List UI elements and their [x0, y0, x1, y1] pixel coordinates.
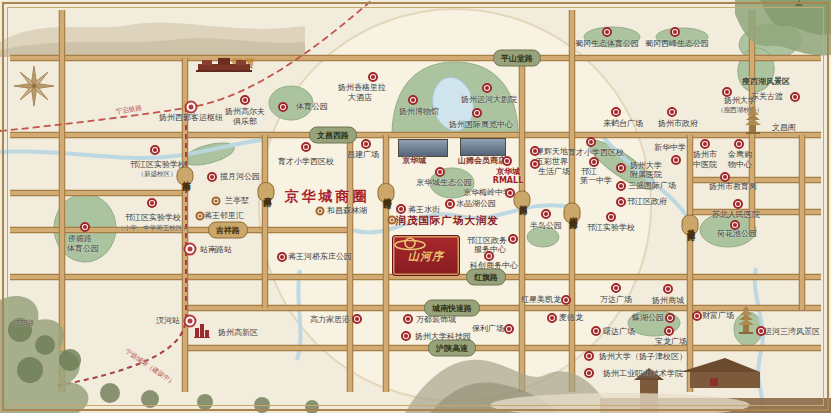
golf-club-icon — [240, 95, 250, 105]
tcm-hospital-label-1: 扬州市 — [693, 151, 717, 159]
road-badge-guozhan-rd: 国展路 — [514, 191, 531, 210]
jiangwang-linlihui-icon — [196, 212, 205, 221]
hehuachi-park-icon — [730, 220, 740, 230]
subei-peoples-hospital-label: 苏北人民医院 — [712, 211, 760, 219]
sanwan-scenic-area-label: 运河三湾风景区 — [764, 328, 820, 336]
runmao-rtmart-icon — [388, 216, 397, 225]
xinghui-tiandi-icon2-icon — [530, 159, 540, 169]
deco-temple-hall — [690, 372, 760, 388]
deco-temple-accent — [710, 378, 718, 386]
jinghua-rmall-icon — [502, 156, 512, 166]
yucai-primary-west-1-icon — [301, 142, 311, 152]
gaoli-home-port-label: 高力家居港 — [310, 316, 350, 324]
yangzhou-museum-label: 扬州博物馆 — [399, 108, 439, 116]
gov-service-center-icon — [508, 234, 518, 244]
golf-club-label-2: 俱乐部 — [233, 118, 257, 126]
shouxihu-scenic-label: 瘦西湖风景区 — [742, 78, 790, 86]
golden-eagle-center-label-1: 金鹰购 — [728, 151, 752, 159]
hanjiang-exp-school-jiangwang-label-2: （小学、中学蒋王校区） — [117, 225, 189, 232]
hechang-forest-lake-label: 和昌森林湖 — [327, 207, 367, 215]
hanjiang-exp-school-xinsheng-label-2: （新盛校区） — [138, 171, 177, 178]
bandao-park-label: 半岛公园 — [530, 222, 562, 230]
deco-tree-5 — [141, 390, 159, 408]
wandu-deco-city-icon — [403, 314, 413, 324]
deco-tree-6 — [197, 394, 213, 410]
baolong-plaza-label: 宝龙广场 — [655, 338, 687, 346]
thumb-sams-club-photo — [460, 138, 506, 156]
yzu-yangzijin-campus-icon — [584, 351, 594, 361]
macalline-label: 红星美凯龙 — [521, 296, 561, 304]
chahe-station-icon — [184, 315, 197, 328]
tcm-hospital-label-2: 中医院 — [693, 161, 717, 169]
jiangwang-bridge-park-label: 蒋王河桥东庄公园 — [288, 253, 352, 261]
wanda-plaza-icon — [611, 283, 621, 293]
shangri-la-hotel-label-1: 扬州香格里拉 — [338, 84, 386, 92]
project-logo-box: 山河序 — [392, 235, 460, 276]
hanjiang-no1-middle-icon — [589, 157, 599, 167]
changjian-plaza-label: 昌建广场 — [347, 151, 379, 159]
road-badge-chengnan-expwy: 城南快速路 — [424, 300, 480, 317]
jiangwang-bridge-park-icon — [277, 252, 287, 262]
xinghui-tiandi-label-2: 五彩世界 — [536, 158, 568, 166]
zhannan-rd-station-label: 站南路站 — [200, 246, 232, 254]
project-emblem-icon — [393, 236, 427, 252]
sister-project-logo: 山河颂 — [196, 56, 276, 71]
bandao-park-icon — [541, 209, 551, 219]
laihetai-plaza-icon — [611, 107, 621, 117]
subei-peoples-hospital-icon — [733, 199, 743, 209]
yangzhou-mall-label: 扬州商城 — [652, 297, 684, 305]
xinghui-tiandi-icon — [530, 146, 540, 156]
shuda-plaza-label: 曙达广场 — [603, 328, 635, 336]
road-badge-jixiang-rd: 吉祥路 — [208, 222, 248, 239]
road-badge-yangzijiang-middle-rd: 扬子江中路 — [682, 215, 699, 236]
metro-market-icon — [547, 313, 557, 323]
park-blob-9 — [527, 227, 559, 247]
deco-tree-4 — [100, 383, 120, 403]
kechuang-business-center-icon — [484, 251, 494, 261]
hanjiang-exp-school-jiangwang-label-1: 邗江区实验学校 — [125, 214, 181, 222]
canal-grand-theatre-label: 扬州运河大剧院 — [461, 96, 517, 104]
shugang-eco-sports-park-icon — [602, 27, 612, 37]
hanjiang-exp-school-xinsheng-label-1: 邗江区实验学校 — [130, 161, 186, 169]
zhannan-rd-station-icon — [184, 243, 197, 256]
jinghua-mall-label: 京华城 — [402, 157, 426, 165]
wandu-deco-city-label: 万都装饰城 — [416, 316, 456, 324]
yzu-affiliated-hospital-label-2: 附属医院 — [630, 171, 662, 179]
lanting-villa-label: 兰亭墅 — [225, 197, 249, 205]
road-badge-bowuguan-rd: 博物馆路 — [378, 183, 395, 203]
crystal-lake-park-icon — [445, 199, 455, 209]
diehu-park-label: 蝶湖公园 — [632, 314, 664, 322]
road-badge-pingshantang-rd: 平山堂路 — [493, 50, 541, 67]
road-badge-hushaan-expwy: 沪陕高速 — [428, 340, 476, 357]
shugang-west-eco-park-label: 蜀冈西峰生态公园 — [645, 40, 709, 48]
road-badge-wenchang-west-rd: 文昌西路 — [309, 127, 357, 144]
city-government-label: 扬州市政府 — [658, 120, 698, 128]
gaoxin-district-label: 扬州高新区 — [218, 329, 258, 337]
sanwan-scenic-area-icon — [756, 326, 766, 336]
sams-club-label: 山姆会员商店 — [458, 157, 506, 165]
shugang-west-eco-park-icon — [670, 27, 680, 37]
jinghua-eco-park-label: 京华城生态公园 — [416, 179, 472, 187]
sansheng-intl-plaza-icon — [616, 181, 626, 191]
golf-club-label-1: 扬州高尔夫 — [225, 108, 265, 116]
golden-eagle-center-label-2: 物中心 — [728, 161, 752, 169]
metro-market-label: 麦德龙 — [559, 314, 583, 322]
canal-grand-theatre-icon — [482, 83, 492, 93]
deco-tree-2 — [59, 349, 81, 371]
changjian-plaza-icon — [361, 139, 371, 149]
deco-tree-7 — [254, 397, 270, 413]
yucai-primary-west-2-icon — [586, 137, 596, 147]
xinghui-tiandi-label-3: 生活广场 — [538, 168, 570, 176]
meiling-middle-school-label: 京华梅岭中学 — [463, 189, 511, 197]
jinghua-eco-park-icon — [435, 167, 445, 177]
jiangwang-water-street-icon — [396, 204, 406, 214]
dongguan-ferry-label: 东关古渡 — [751, 93, 783, 101]
gaoli-home-port-icon — [352, 314, 362, 324]
yzu-affiliated-hospital-icon — [616, 163, 626, 173]
jinghua-rmall-label-2: RMALL — [493, 177, 524, 185]
hanjiang-no1-middle-label-1: 邗江 — [581, 168, 597, 176]
deco-tree-3 — [17, 357, 43, 383]
shenyang-rd-label: 沈阳路 — [14, 320, 35, 327]
shangri-la-hotel-label-2: 大酒店 — [348, 94, 372, 102]
thumb-jinghua-mall-photo — [398, 139, 448, 157]
qiaomei-rd-sports-park-label-1: 侨媚路 — [68, 235, 92, 243]
deco-tree-1 — [35, 335, 55, 355]
laihetai-plaza-label: 来鹤台广场 — [603, 120, 643, 128]
macalline-icon — [561, 295, 571, 305]
xinhua-middle-school-label: 新华中学 — [654, 144, 686, 152]
road-badge-hongqi-rd: 红旗路 — [466, 269, 506, 286]
lanyuehe-park-label: 揽月河公园 — [220, 173, 260, 181]
hanjiang-exp-school-xinsheng-icon — [150, 145, 160, 155]
chahe-station-label: 汊河站 — [156, 317, 180, 325]
hanjiang-district-gov-label: 邗江区政府 — [627, 198, 667, 206]
city-government-icon — [667, 107, 677, 117]
poly-plaza-icon — [504, 324, 514, 334]
sansheng-intl-plaza-label: 三盛国际广场 — [628, 182, 676, 190]
crystal-lake-park-label: 水晶湖公园 — [456, 200, 496, 208]
runmao-rtmart-label: 润茂国际广场大润发 — [395, 215, 499, 226]
yzu-science-park-icon — [401, 331, 411, 341]
hanjiang-exp-school-icon — [606, 212, 616, 222]
road-badge-zhenzhou-middle-rd: 真州中路 — [258, 182, 275, 202]
jinghua-rmall-label-1: 京华城 — [496, 168, 520, 176]
diehu-park-icon — [665, 313, 675, 323]
lanting-villa-icon — [212, 197, 221, 206]
map-canvas: 平山堂路文昌西路吉祥路红旗路城南快速路沪陕高速站南路真州中路博物馆路国展路润扬快… — [0, 0, 831, 413]
road-badge-zhannan-rd: 站南路 — [177, 167, 194, 186]
wenchang-pavilion-label: 文昌阁 — [772, 124, 796, 132]
poly-plaza-label: 保利广场 — [472, 325, 504, 333]
yangzhou-museum-icon — [408, 95, 418, 105]
shuda-plaza-icon — [591, 326, 601, 336]
west-transport-hub-label: 扬州西部客运枢纽 — [159, 114, 223, 122]
qiaomei-rd-sports-park-label-2: 体育公园 — [67, 245, 99, 253]
hanjiang-district-gov-icon — [616, 197, 626, 207]
yangzhou-polytechnic-label: 扬州工业职业技术学院 — [603, 370, 683, 378]
road-badge-runyang-expwy: 润扬快速路 — [564, 203, 581, 224]
compass-icon — [12, 64, 56, 108]
hechang-forest-lake-icon — [316, 207, 325, 216]
lanyuehe-park-icon — [207, 172, 217, 182]
hehuachi-park-label: 荷花池公园 — [717, 230, 757, 238]
xinghui-tiandi-label-1: 星辉天地 — [536, 148, 568, 156]
tcm-hospital-icon — [700, 139, 710, 149]
shugang-eco-sports-park-label: 蜀冈生态体育公园 — [575, 40, 639, 48]
fortune-plaza-icon — [692, 311, 702, 321]
intl-expo-center-icon — [472, 108, 482, 118]
shangri-la-hotel-icon — [368, 72, 378, 82]
sports-park-label: 体育公园 — [296, 103, 328, 111]
west-transport-hub-icon — [185, 101, 198, 114]
hanjiang-no1-middle-label-2: 第一中学 — [580, 177, 612, 185]
baolong-plaza-icon — [664, 326, 674, 336]
hanjiang-exp-school-label: 邗江实验学校 — [587, 224, 635, 232]
education-bureau-icon — [720, 172, 730, 182]
yucai-primary-west-2-label: 育才小学西区校 — [568, 149, 624, 157]
jiangwang-linlihui-label: 蒋王邻里汇 — [204, 212, 244, 220]
yzu-yangzijin-campus-label: 扬州大学（扬子津校区） — [599, 353, 687, 361]
education-bureau-label: 扬州市教育局 — [709, 183, 757, 191]
xinhua-middle-school-icon — [671, 155, 681, 165]
golden-eagle-center-icon — [734, 139, 744, 149]
fortune-plaza-label: 财富广场 — [702, 312, 734, 320]
sister-logo-building-icon — [196, 56, 252, 72]
yangzhou-mall-icon — [663, 284, 673, 294]
hanjiang-exp-school-jiangwang-icon — [147, 198, 157, 208]
yzu-shouxihu-campus-icon — [722, 87, 732, 97]
gov-service-center-label-1: 邗江区政务 — [467, 237, 507, 245]
jinghuacheng-cbd-label: 京华城商圈 — [285, 189, 370, 203]
wanda-plaza-label: 万达广场 — [600, 296, 632, 304]
intl-expo-center-label: 扬州国际展览中心 — [449, 121, 513, 129]
dongguan-ferry-icon — [790, 92, 800, 102]
sports-park-icon — [278, 102, 288, 112]
yucai-primary-west-1-label: 育才小学西区校 — [278, 158, 334, 166]
yzu-affiliated-hospital-label-1: 扬州大学 — [630, 162, 662, 170]
qiaomei-rd-sports-park-icon — [80, 222, 90, 232]
yangzhou-polytechnic-icon — [584, 368, 594, 378]
